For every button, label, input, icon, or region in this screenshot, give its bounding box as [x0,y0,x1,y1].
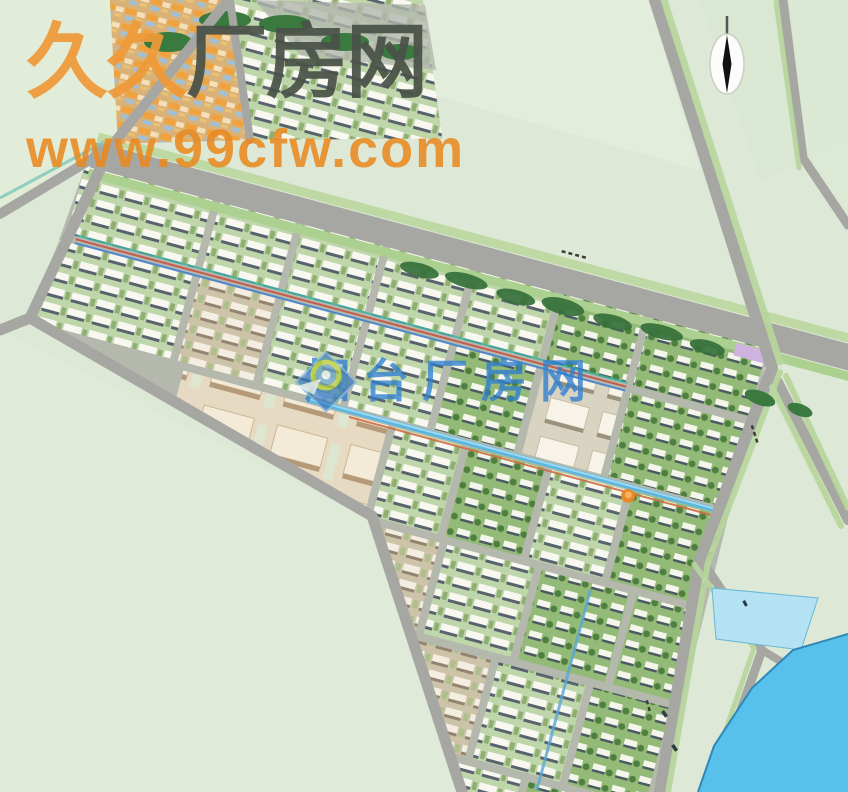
pond [712,588,818,650]
site-plan-map: 久久厂房网 www.99cfw.com 烟台厂房网 [0,0,848,792]
map-base [0,0,848,792]
